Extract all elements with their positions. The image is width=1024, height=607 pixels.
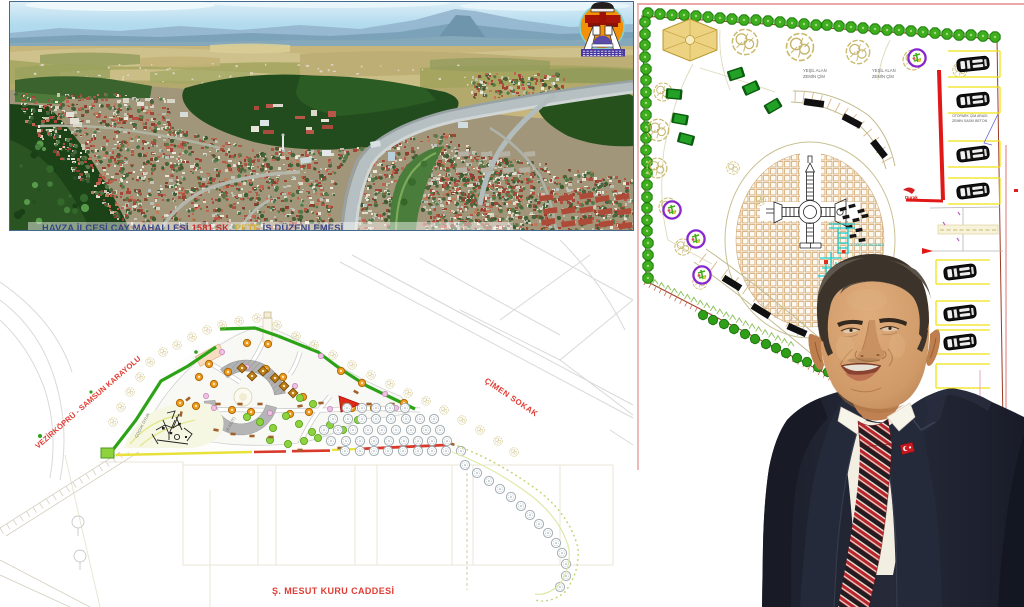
svg-text:ZEMİN ÇİM: ZEMİN ÇİM bbox=[803, 74, 825, 79]
svg-text:ZEMİN SASKI BETON: ZEMİN SASKI BETON bbox=[952, 118, 988, 123]
svg-text:ZEMİN ÇİM: ZEMİN ÇİM bbox=[872, 74, 894, 79]
svg-text:Ş. MESUT KURU CADDESİ: Ş. MESUT KURU CADDESİ bbox=[272, 586, 394, 596]
svg-text:OTOPARK ÇİM ARASI: OTOPARK ÇİM ARASI bbox=[952, 113, 987, 118]
svg-text:YEŞİL ALAN: YEŞİL ALAN bbox=[803, 68, 827, 73]
svg-text:Durak: Durak bbox=[905, 195, 918, 200]
svg-text:YEŞİL ALAN: YEŞİL ALAN bbox=[872, 68, 896, 73]
svg-text:DOĞA OYUN ALANI: DOĞA OYUN ALANI bbox=[851, 242, 884, 247]
